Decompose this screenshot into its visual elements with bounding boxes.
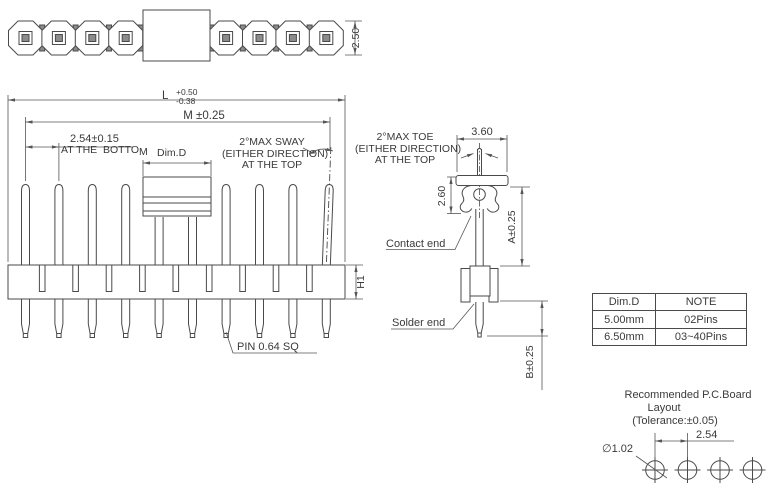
front-view-solder-tails (22, 299, 331, 338)
pitch-note-m: M (139, 147, 148, 159)
top-view (9, 10, 363, 61)
front-view-dimension-lines (8, 95, 363, 353)
pcb-holes (642, 457, 766, 483)
top-view-height-dim-label: 2.50 (351, 23, 363, 53)
pcb-title-line2: Layout (584, 402, 744, 414)
below-board-dim-label: B±0.25 (525, 342, 537, 382)
overall-dim-label: M ±0.25 (164, 110, 244, 123)
top-view-break-box (143, 10, 210, 61)
pcb-hole-dim-label: ∅1.02 (602, 443, 633, 455)
pcb-dimension-lines (636, 433, 734, 478)
sway-note-line3: AT THE TOP (222, 160, 322, 172)
front-view-dimd-block (143, 177, 211, 216)
pcb-title-line3: (Tolerance:±0.05) (595, 415, 755, 427)
detail-contact-end (456, 148, 508, 266)
detail-arrowheads (449, 137, 543, 336)
above-board-dim-label: A±0.25 (507, 207, 519, 247)
engineering-drawing: 2.50 L +0.50 -0.38 M ±0.25 2.54±0.15 AT … (0, 0, 768, 486)
spec-table-cell: 02Pins (656, 310, 746, 327)
dimd-label: Dim.D (157, 148, 186, 160)
spec-table: Dim.D NOTE 5.00mm 02Pins 6.50mm 03~40Pin… (592, 293, 747, 346)
length-tol-minus: -0.38 (176, 97, 195, 106)
spec-table-cell: 03~40Pins (656, 328, 746, 345)
housing-height-dim-label: H1 (356, 267, 368, 297)
detail-width-dim-label: 3.60 (462, 126, 502, 138)
spec-table-header-note: NOTE (656, 294, 746, 310)
toe-note-line3: AT THE TOP (355, 155, 455, 167)
sway-note-line1: 2°MAX SWAY (222, 137, 322, 149)
pin-note-label: PIN 0.64 SQ (237, 341, 299, 353)
toe-note-line1: 2°MAX TOE (355, 132, 455, 144)
contact-length-dim-label: 2.60 (437, 181, 449, 211)
length-dim-label: L (162, 90, 168, 103)
pitch-note-label: AT THE BOTTO (61, 145, 139, 157)
pcb-pitch-dim-label: 2.54 (696, 429, 717, 441)
spec-table-header-dimd: Dim.D (593, 294, 656, 310)
front-view (8, 95, 363, 353)
spec-table-cell: 6.50mm (593, 328, 656, 345)
detail-solder-end (476, 302, 483, 337)
contact-end-label: Contact end (386, 238, 445, 250)
solder-end-label: Solder end (392, 317, 445, 329)
front-view-housing (8, 265, 345, 299)
pcb-title-line1: Recommended P.C.Board (608, 389, 768, 401)
spec-table-cell: 5.00mm (593, 310, 656, 327)
front-view-tilted-pin (322, 147, 335, 265)
detail-housing (461, 266, 498, 302)
